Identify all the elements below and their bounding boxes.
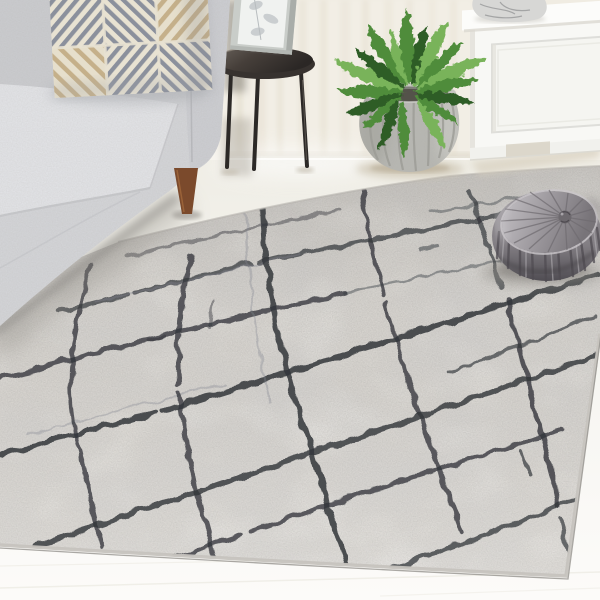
pillow-cell [49, 0, 105, 48]
frame-art [238, 0, 288, 48]
throw-pillow [49, 0, 212, 98]
framed-print [230, 0, 297, 56]
pouf-center-knot [559, 211, 572, 224]
scene-canvas [0, 0, 600, 600]
cabinet-left-edge [470, 30, 475, 154]
pillow-cell [102, 0, 158, 45]
cabinet-panel [492, 36, 600, 132]
knot-highlight [561, 213, 564, 216]
living-room-photo [0, 0, 600, 600]
curtain-fold [340, 0, 350, 166]
table-leg-shadow [296, 167, 314, 173]
white-cabinet [462, 0, 600, 175]
curtain-fold [320, 0, 327, 164]
table-leg-shadow [221, 169, 239, 175]
panel-inner-shadow [492, 44, 496, 132]
